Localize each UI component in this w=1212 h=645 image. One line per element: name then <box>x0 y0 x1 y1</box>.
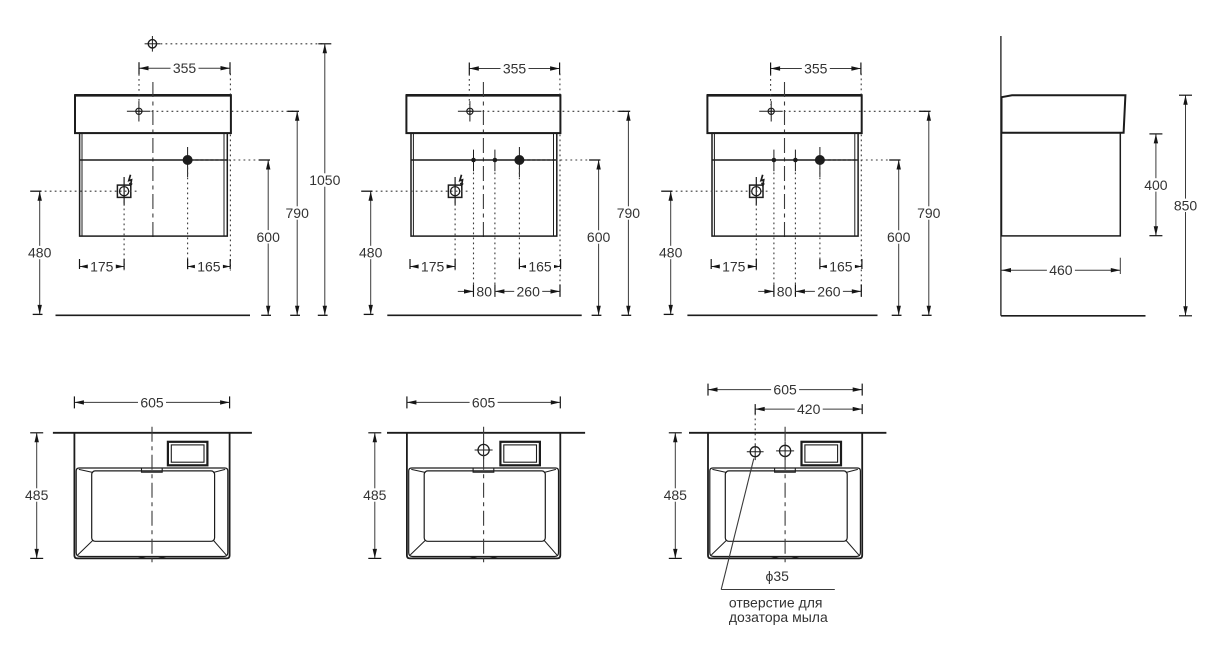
svg-text:1050: 1050 <box>309 172 340 188</box>
svg-text:790: 790 <box>617 205 641 221</box>
svg-text:420: 420 <box>797 401 821 417</box>
svg-text:605: 605 <box>472 394 496 410</box>
svg-text:175: 175 <box>90 259 114 275</box>
svg-text:460: 460 <box>1049 262 1073 278</box>
svg-text:165: 165 <box>528 259 552 275</box>
svg-text:355: 355 <box>503 61 527 77</box>
svg-text:600: 600 <box>587 229 611 245</box>
svg-text:480: 480 <box>359 245 383 261</box>
svg-text:480: 480 <box>28 245 52 261</box>
svg-text:790: 790 <box>286 205 310 221</box>
svg-text:165: 165 <box>829 259 853 275</box>
svg-text:ϕ35: ϕ35 <box>766 568 790 584</box>
svg-text:80: 80 <box>777 283 793 299</box>
svg-text:260: 260 <box>817 283 841 299</box>
svg-text:165: 165 <box>197 259 221 275</box>
svg-text:отверстие для: отверстие для <box>729 594 823 610</box>
svg-text:480: 480 <box>659 245 683 261</box>
svg-text:175: 175 <box>722 259 746 275</box>
svg-text:485: 485 <box>25 487 49 503</box>
svg-text:175: 175 <box>421 259 445 275</box>
svg-text:790: 790 <box>917 205 941 221</box>
svg-text:605: 605 <box>140 394 164 410</box>
svg-text:605: 605 <box>773 382 797 398</box>
svg-text:80: 80 <box>476 283 492 299</box>
svg-text:600: 600 <box>257 229 281 245</box>
svg-text:260: 260 <box>517 283 541 299</box>
svg-text:600: 600 <box>887 229 911 245</box>
svg-text:485: 485 <box>363 487 387 503</box>
svg-text:дозатора мыла: дозатора мыла <box>729 609 828 625</box>
svg-text:355: 355 <box>173 60 197 76</box>
svg-text:850: 850 <box>1174 197 1198 213</box>
svg-text:400: 400 <box>1144 177 1168 193</box>
svg-text:355: 355 <box>804 61 828 77</box>
svg-text:485: 485 <box>664 487 688 503</box>
